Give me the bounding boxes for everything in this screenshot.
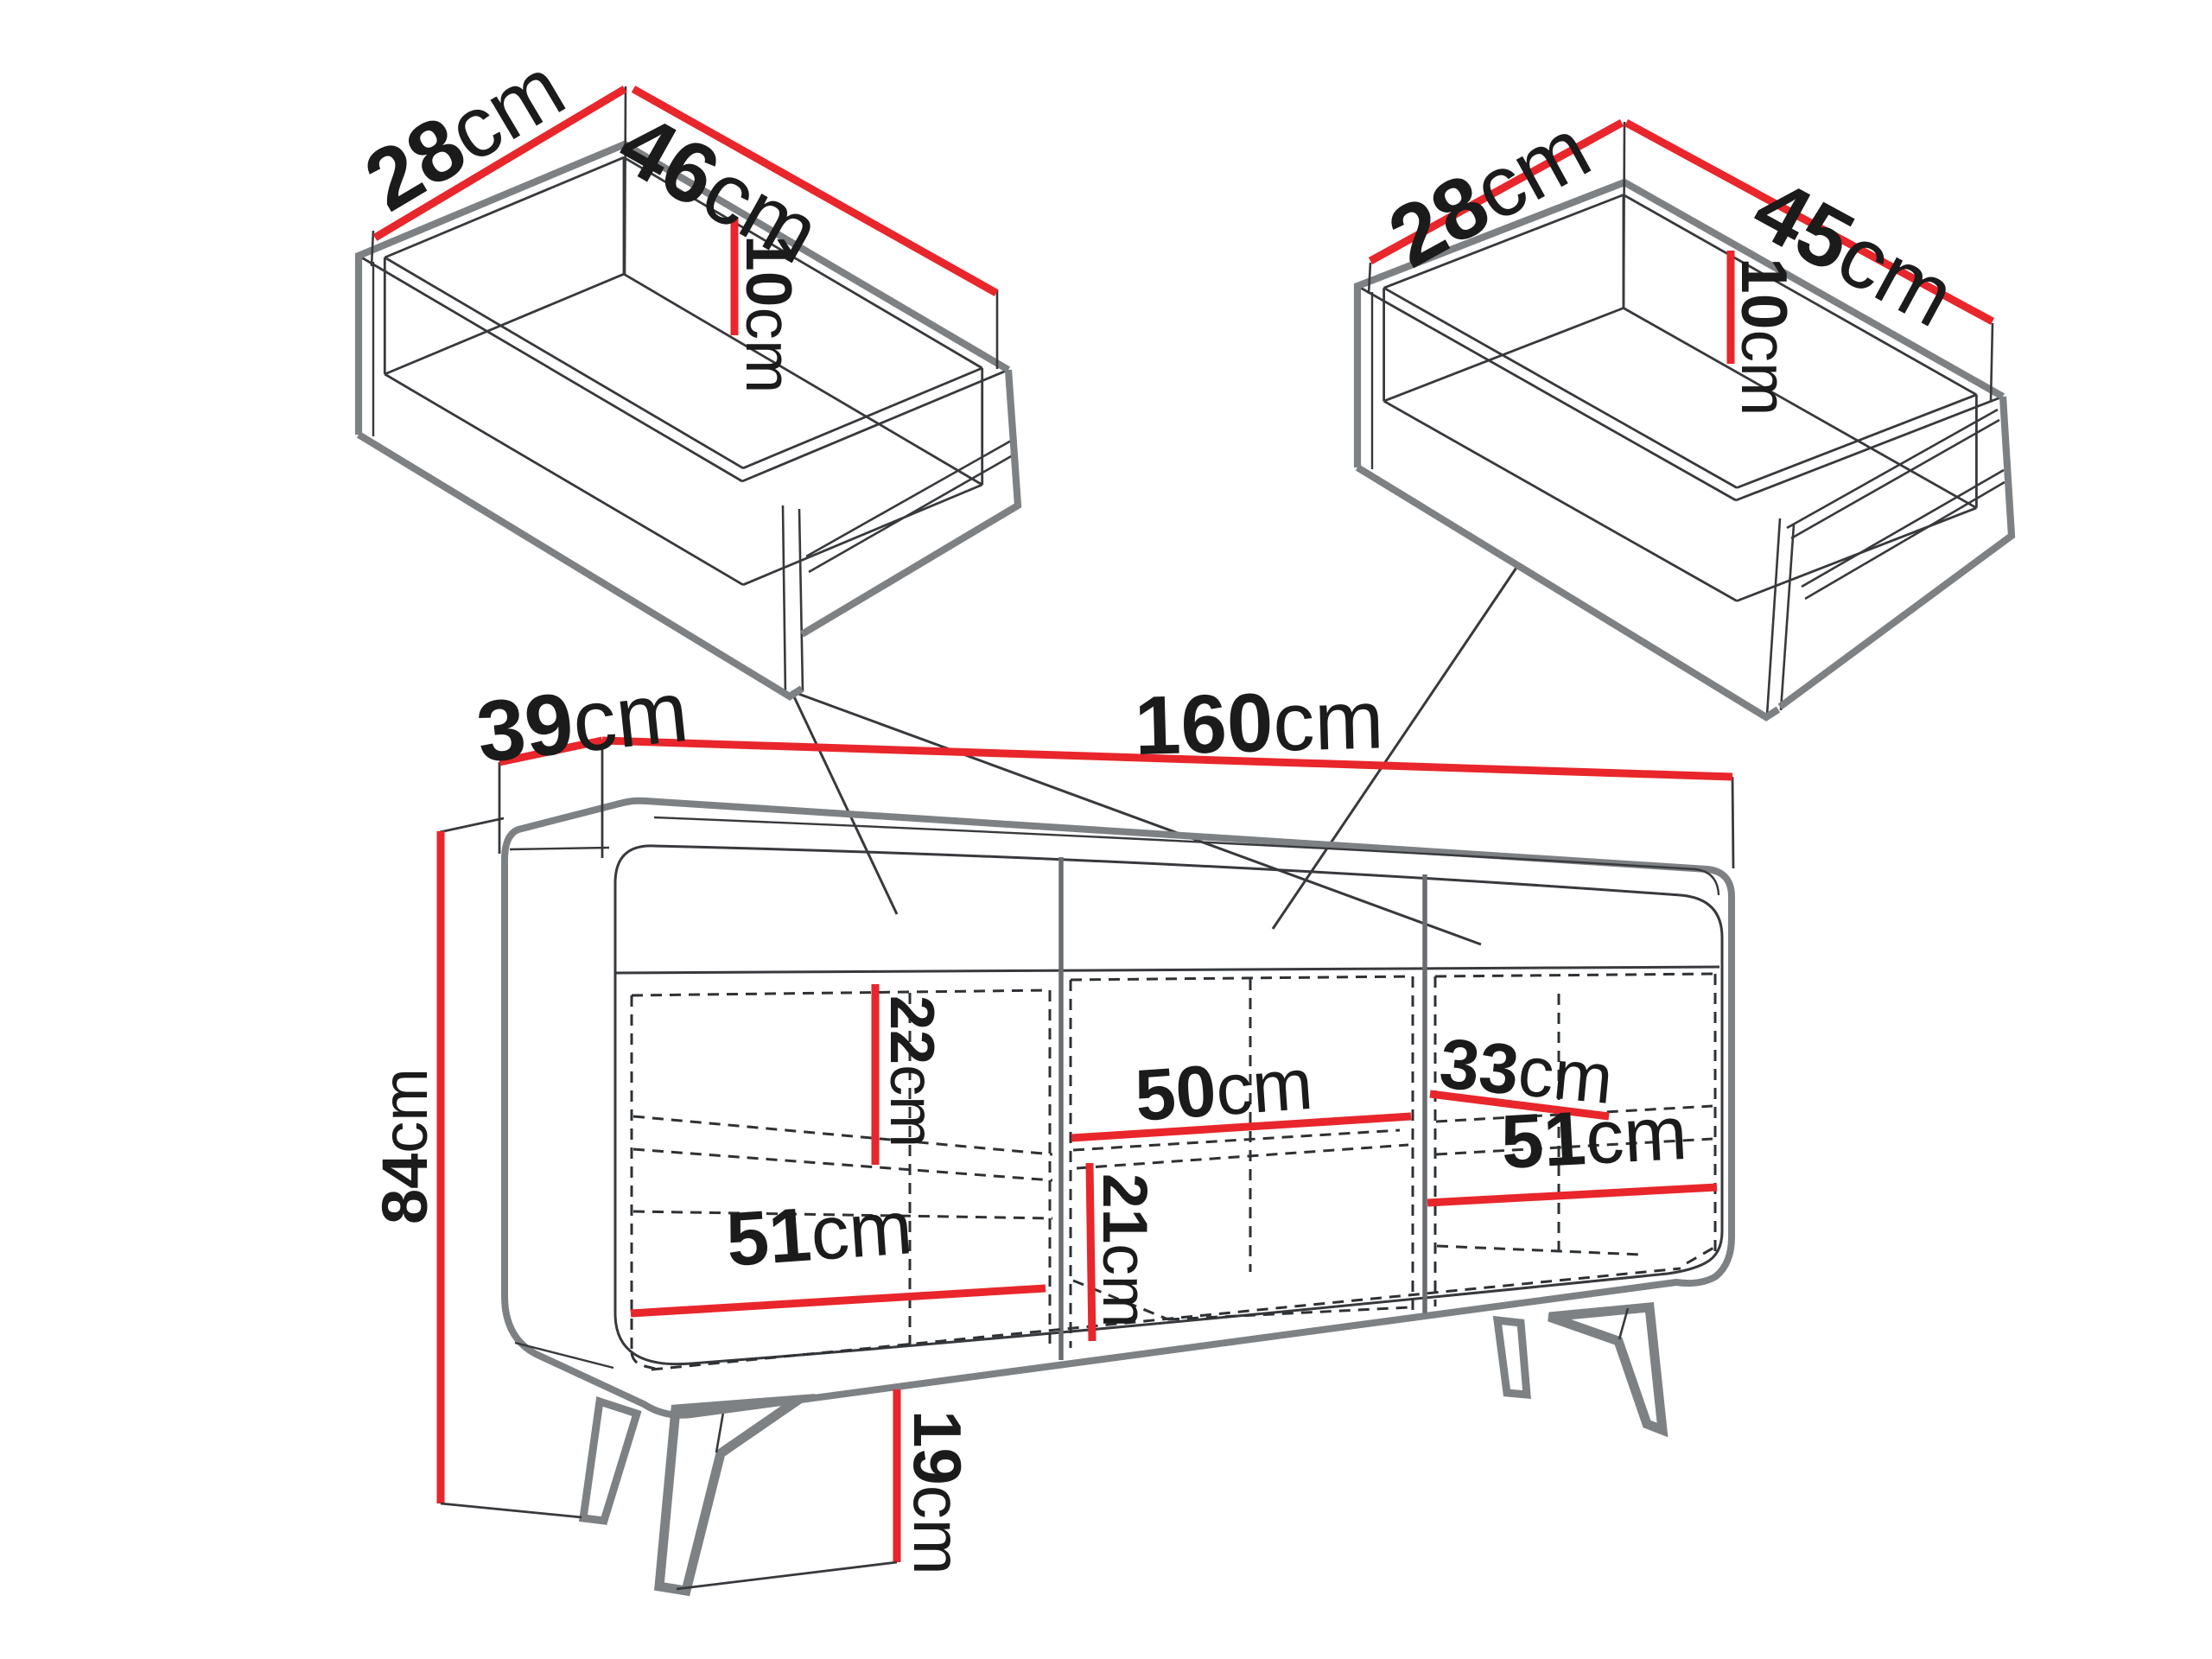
svg-text:50cm: 50cm: [1133, 1043, 1315, 1136]
svg-text:51cm: 51cm: [1499, 1090, 1689, 1185]
svg-text:22cm: 22cm: [877, 995, 946, 1147]
svg-text:10cm: 10cm: [733, 235, 805, 393]
svg-text:160cm: 160cm: [1134, 673, 1385, 772]
svg-text:19cm: 19cm: [899, 1410, 976, 1575]
svg-text:84cm: 84cm: [369, 1068, 441, 1224]
svg-text:51cm: 51cm: [723, 1184, 915, 1282]
svg-text:21cm: 21cm: [1090, 1173, 1160, 1328]
svg-text:10cm: 10cm: [1728, 257, 1801, 416]
